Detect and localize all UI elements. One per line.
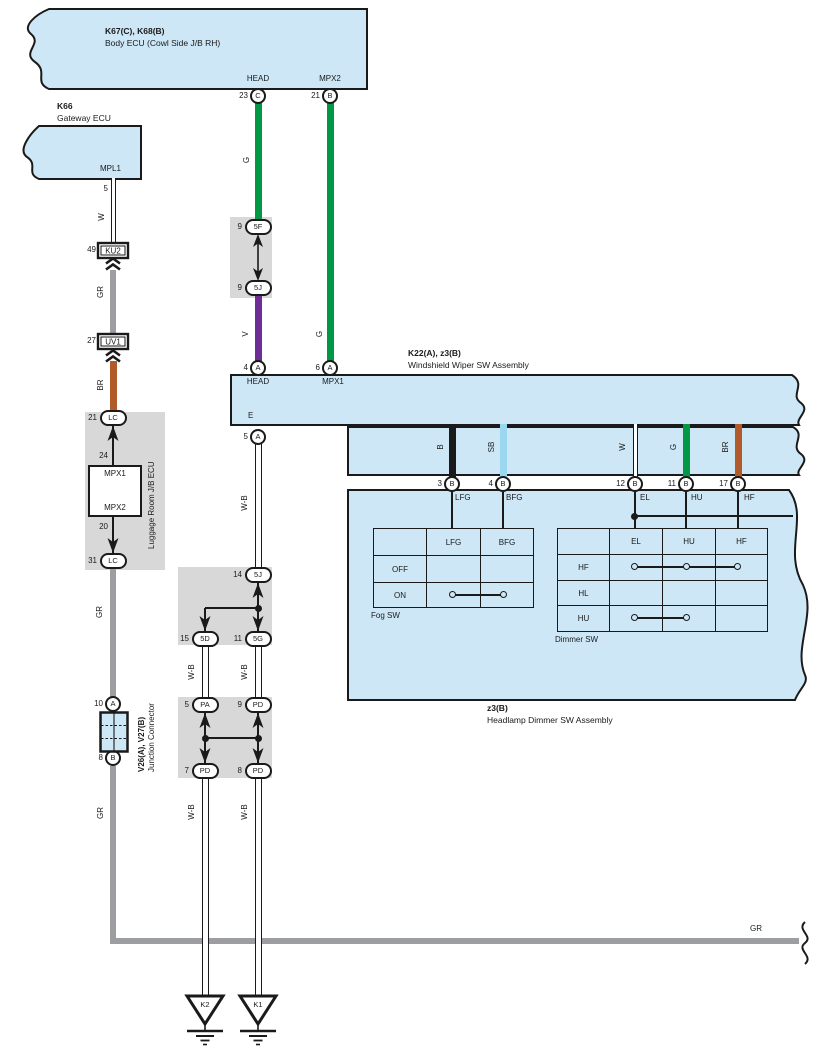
wiper-code: K22(A), z3(B): [408, 348, 529, 360]
pin-num-21: 21: [300, 91, 320, 101]
wire-label-wb2: W-B: [187, 659, 197, 685]
dimmer-header-hf: HF: [716, 529, 768, 555]
arrow-up-5j14: [250, 583, 266, 598]
pin-5A: A: [250, 429, 266, 445]
line-el-branch: [634, 515, 793, 517]
dimmer-header-el: EL: [610, 529, 663, 555]
wire-skyblue-bfg: [500, 424, 507, 477]
dimmer-header-hu: HU: [663, 529, 716, 555]
pin-11B: B: [678, 476, 694, 492]
arrow-up-pd9: [250, 713, 266, 728]
oval-num-pd7: 7: [169, 766, 189, 776]
ground-symbol-k1: K1: [234, 994, 282, 1048]
jb-pin-20: 20: [88, 522, 108, 532]
wire-label-gr3: GR: [96, 800, 106, 826]
pin-21B: B: [322, 88, 338, 104]
dimmer-contact-dot-hf-hu: [683, 563, 690, 570]
wire-wb-pd7-to-ground: [202, 779, 209, 996]
mpx1-label: MPX1: [88, 469, 142, 479]
wiper-sw-lower-band: [347, 426, 813, 476]
gateway-header: K66 Gateway ECU: [57, 101, 111, 125]
wire-continuation-squiggle: [794, 920, 815, 966]
pin-num-23: 23: [228, 91, 248, 101]
oval-num-lc31: 31: [77, 556, 97, 566]
line-hf-to-table: [737, 492, 739, 528]
dimmer-row-hl: HL: [558, 581, 610, 606]
fog-contact-dot-lfg: [449, 591, 456, 598]
arrow-down-lc31: [105, 538, 121, 553]
wire-wb-e-to-5j: [255, 444, 262, 568]
terminal-PD-8: PD: [245, 763, 272, 779]
junction-connector-label: V26(A), V27(B) Junction Connector: [137, 692, 157, 772]
dimmer-contact-dot-hf-el: [631, 563, 638, 570]
oval-num-pa5: 5: [169, 700, 189, 710]
terminal-LC-21: LC: [100, 410, 127, 426]
fog-header-lfg: LFG: [427, 529, 481, 556]
oval-num-pd9: 9: [222, 700, 242, 710]
chevron-icon: [103, 349, 123, 363]
gateway-code: K66: [57, 101, 111, 113]
wire-label-g3: G: [669, 434, 679, 460]
wire-label-v: V: [241, 321, 251, 347]
port-mpl1: MPL1: [100, 164, 121, 174]
body-ecu-name: Body ECU (Cowl Side J/B RH): [105, 38, 220, 50]
terminal-5J: 5J: [245, 280, 272, 296]
wiring-diagram-canvas: LFG BFG OFF ON Fog SW EL HU HF HF HL: [0, 0, 815, 1050]
pin-num-11b: 11: [656, 479, 676, 489]
terminal-PD-9: PD: [245, 697, 272, 713]
wire-label-g2: G: [315, 321, 325, 347]
pin-num-10a: 10: [83, 699, 103, 709]
wire-wb-pd8-to-ground: [255, 779, 262, 996]
wire-gray-bottom-horizontal: [110, 938, 799, 944]
line-5d-branch: [205, 607, 258, 609]
mpx2-label: MPX2: [88, 503, 142, 513]
arrow-up-lc21: [105, 426, 121, 441]
junction-connector-grid: [99, 711, 129, 753]
headlamp-name: Headlamp Dimmer SW Assembly: [487, 715, 613, 727]
wire-label-gr1: GR: [96, 279, 106, 305]
port-bfg: BFG: [506, 493, 522, 503]
port-head-top: HEAD: [243, 74, 273, 84]
wire-label-br1: BR: [96, 372, 106, 398]
jb-pin-24: 24: [88, 451, 108, 461]
wiper-header: K22(A), z3(B) Windshield Wiper SW Assemb…: [408, 348, 529, 372]
arrow-down-pd7: [197, 748, 213, 763]
dimmer-contact-line-hu: [634, 617, 686, 619]
dimmer-contact-dot-hf-hf: [734, 563, 741, 570]
wire-label-wb1: W-B: [240, 490, 250, 516]
pin-num-6a: 6: [300, 363, 320, 373]
arrow-up-pa: [197, 713, 213, 728]
junction-dot-pd: [255, 735, 262, 742]
pin-10A: A: [105, 696, 121, 712]
wire-gray-junction-down: [110, 766, 116, 942]
terminal-5J-14: 5J: [245, 567, 272, 583]
double-arrow-5f-5j: [249, 234, 267, 281]
port-mpx2-top: MPX2: [315, 74, 345, 84]
headlamp-code: z3(B): [487, 703, 613, 715]
wire-label-br2: BR: [721, 434, 731, 460]
rect-num-uv1: 27: [76, 336, 96, 346]
wire-brown-uv1-lc: [110, 361, 117, 413]
terminal-5G: 5G: [245, 631, 272, 647]
pin-23C: C: [250, 88, 266, 104]
wire-green-head: [255, 102, 262, 220]
oval-num-lc21: 21: [77, 413, 97, 423]
pin-num-3b: 3: [422, 479, 442, 489]
pin-17B: B: [730, 476, 746, 492]
oval-num-5f: 9: [222, 222, 242, 232]
port-hu: HU: [691, 493, 703, 503]
line-pa-pd-bridge: [205, 737, 258, 739]
dimmer-row-hf: HF: [558, 555, 610, 581]
dimmer-contact-dot-hu-hu: [683, 614, 690, 621]
terminal-5D: 5D: [192, 631, 219, 647]
line-el-to-table: [634, 492, 636, 528]
terminal-PA: PA: [192, 697, 219, 713]
fog-contact-line: [452, 594, 503, 596]
wire-violet-head: [255, 295, 262, 362]
wire-label-wb4: W-B: [187, 799, 197, 825]
dimmer-contact-dot-hu-el: [631, 614, 638, 621]
port-e: E: [248, 411, 253, 421]
wire-label-wb3: W-B: [240, 659, 250, 685]
wire-black-lfg: [449, 424, 456, 477]
gateway-name: Gateway ECU: [57, 113, 111, 125]
junction-dot-5j: [255, 605, 262, 612]
fog-sw-title: Fog SW: [371, 611, 400, 621]
pin-4B: B: [495, 476, 511, 492]
ground-symbol-k2: K2: [181, 994, 229, 1048]
wire-gray-lc31-junction: [110, 569, 116, 697]
dimmer-row-hu: HU: [558, 606, 610, 632]
oval-num-5j: 9: [222, 283, 242, 293]
wire-label-sb: SB: [487, 434, 497, 460]
svg-text:K1: K1: [253, 1000, 262, 1009]
wire-label-w2: W: [618, 434, 628, 460]
svg-text:UV1: UV1: [105, 338, 121, 347]
junction-name: Junction Connector: [147, 692, 157, 772]
pin-6A: A: [322, 360, 338, 376]
line-hu-to-table: [685, 492, 687, 528]
port-mpx1-mid: MPX1: [318, 377, 348, 387]
chevron-icon: [103, 257, 123, 271]
rect-num-ku2: 49: [76, 245, 96, 255]
oval-num-5d15: 15: [169, 634, 189, 644]
junction-code: V26(A), V27(B): [137, 692, 147, 772]
wire-label-gr2: GR: [95, 599, 105, 625]
pin-num-17b: 17: [708, 479, 728, 489]
arrow-down-pd8: [250, 748, 266, 763]
gateway-pin-5: 5: [88, 184, 108, 194]
oval-num-5j14: 14: [222, 570, 242, 580]
pin-num-8b: 8: [83, 753, 103, 763]
gateway-ecu-box: [11, 125, 143, 180]
pin-num-4a: 4: [228, 363, 248, 373]
svg-text:K2: K2: [200, 1000, 209, 1009]
wire-white-el: [633, 424, 638, 477]
luggage-room-label: Luggage Room J/B ECU: [147, 429, 157, 549]
arrow-down-5g: [250, 616, 266, 631]
body-ecu-code: K67(C), K68(B): [105, 26, 220, 38]
pin-3B: B: [444, 476, 460, 492]
wire-label-gr4: GR: [750, 924, 770, 934]
wire-wb-5d-to-pa: [202, 647, 209, 698]
fog-header-blank: [374, 529, 427, 556]
fog-contact-dot-bfg: [500, 591, 507, 598]
fog-row-off: OFF: [374, 556, 427, 583]
wire-gray-ku2-uv1: [110, 270, 116, 335]
dimmer-sw-title: Dimmer SW: [555, 635, 598, 645]
fog-row-on: ON: [374, 583, 427, 608]
wire-label-g1: G: [242, 147, 252, 173]
junction-dot-pa: [202, 735, 209, 742]
oval-num-pd8: 8: [222, 766, 242, 776]
junction-dot-el: [631, 513, 638, 520]
dimmer-header-blank: [558, 529, 610, 555]
wire-white-mpl1: [111, 178, 116, 245]
fog-header-bfg: BFG: [481, 529, 534, 556]
line-bfg-to-table: [502, 492, 504, 528]
oval-num-5g11: 11: [222, 634, 242, 644]
wiper-name: Windshield Wiper SW Assembly: [408, 360, 529, 372]
terminal-LC-31: LC: [100, 553, 127, 569]
port-hf: HF: [744, 493, 755, 503]
pin-num-4b: 4: [473, 479, 493, 489]
arrow-down-5d: [197, 616, 213, 631]
port-head-mid: HEAD: [243, 377, 273, 387]
headlamp-header: z3(B) Headlamp Dimmer SW Assembly: [487, 703, 613, 727]
pin-num-12b: 12: [605, 479, 625, 489]
wire-brown-hf: [735, 424, 742, 477]
terminal-5F: 5F: [245, 219, 272, 235]
port-lfg: LFG: [455, 493, 471, 503]
pin-12B: B: [627, 476, 643, 492]
wire-wb-5g-to-pd: [255, 647, 262, 698]
wire-label-wb5: W-B: [240, 799, 250, 825]
pin-num-5a: 5: [228, 432, 248, 442]
terminal-PD-7: PD: [192, 763, 219, 779]
wire-green-mpx2: [327, 102, 334, 362]
line-lfg-to-table: [451, 492, 453, 528]
body-ecu-header: K67(C), K68(B) Body ECU (Cowl Side J/B R…: [105, 26, 220, 50]
svg-text:KU2: KU2: [105, 247, 121, 256]
wire-label-w1: W: [97, 204, 107, 230]
wire-label-b: B: [436, 434, 446, 460]
port-el: EL: [640, 493, 650, 503]
wire-green-hu: [683, 424, 690, 477]
pin-4A: A: [250, 360, 266, 376]
